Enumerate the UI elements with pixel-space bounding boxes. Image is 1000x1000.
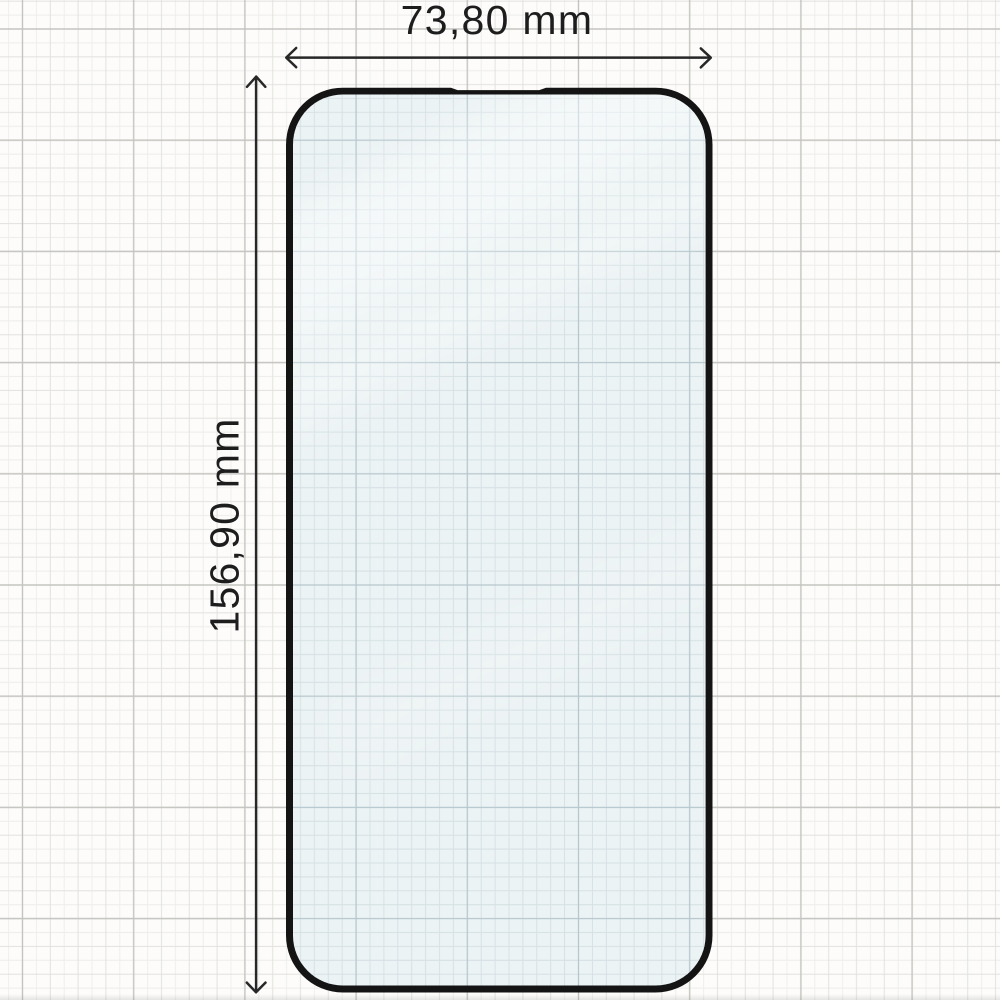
svg-text:73,80 mm: 73,80 mm [401,0,594,43]
svg-text:156,90 mm: 156,90 mm [202,418,248,634]
